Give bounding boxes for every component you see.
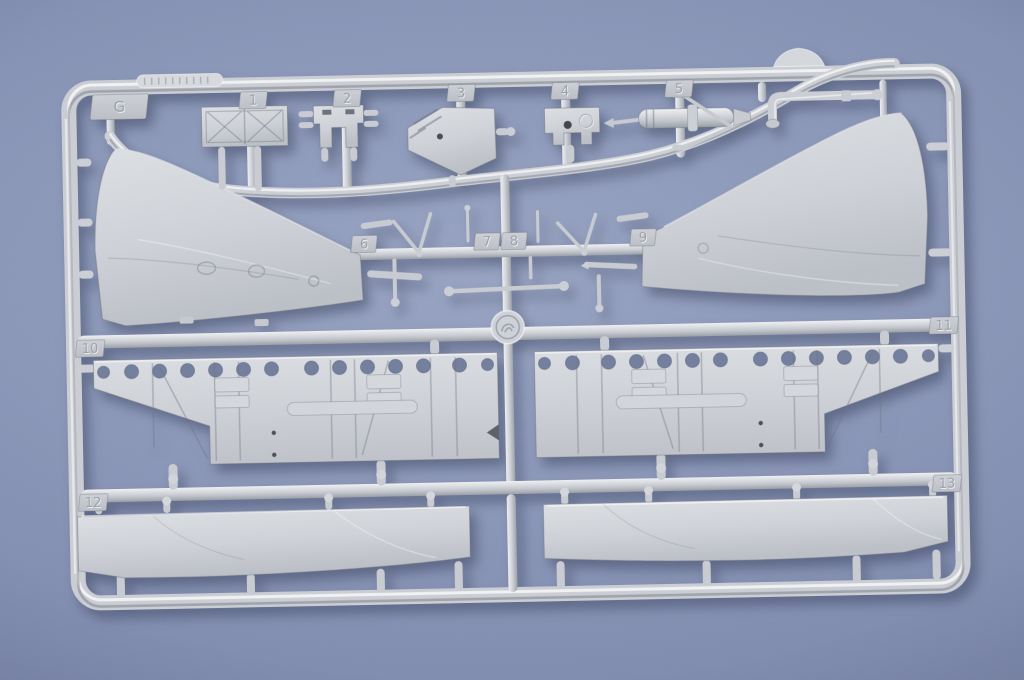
molding-strip <box>137 73 223 88</box>
tab-6-label: 6 <box>360 237 369 252</box>
gate <box>926 142 949 150</box>
gate <box>77 218 92 226</box>
gate <box>928 248 951 256</box>
tab-5-label: 5 <box>675 82 684 97</box>
tab-12-label: 12 <box>85 496 102 511</box>
gate <box>938 344 954 352</box>
tab-10-label: 10 <box>82 342 99 357</box>
gate <box>430 340 439 355</box>
tab-4-label: 4 <box>561 84 570 99</box>
tab-g-label: G <box>113 98 125 116</box>
gate <box>600 336 609 351</box>
panel-lug <box>179 316 193 323</box>
panel-lug <box>255 319 269 326</box>
dome-part <box>773 48 824 67</box>
right-bulkhead-part <box>534 344 940 458</box>
gate <box>76 158 91 166</box>
tab-2-label: 2 <box>343 92 352 107</box>
sprue-graphic: G G 1 1 2 2 3 3 4 4 5 5 6 6 7 7 8 <box>0 0 1024 680</box>
box-part <box>544 107 600 163</box>
gate <box>76 364 95 372</box>
sprue-runner-g: G G 1 1 2 2 3 3 4 4 5 5 6 6 7 7 8 <box>0 0 1024 680</box>
gate <box>79 270 94 278</box>
runner <box>758 82 766 102</box>
truss-panel-part <box>201 106 289 193</box>
left-bulkhead-part <box>93 352 499 466</box>
tab-7-label: 7 <box>483 235 492 250</box>
tab-9-label: 9 <box>639 231 648 246</box>
left-fairing-panel-part <box>93 144 364 329</box>
bracket-part <box>298 105 379 163</box>
runner <box>507 494 518 592</box>
tab-3-label: 3 <box>457 86 466 101</box>
photo-canvas: G G 1 1 2 2 3 3 4 4 5 5 6 6 7 7 8 <box>0 0 1024 680</box>
tab-8-label: 8 <box>510 234 519 249</box>
tab-1-label: 1 <box>249 94 258 109</box>
tab-11-label: 11 <box>935 319 952 334</box>
runner <box>503 338 515 486</box>
gate <box>880 330 889 345</box>
tab-13-label: 13 <box>939 477 956 492</box>
medallion-badge <box>491 310 525 344</box>
right-long-panel-part <box>543 495 948 564</box>
left-long-panel-part <box>77 506 470 579</box>
